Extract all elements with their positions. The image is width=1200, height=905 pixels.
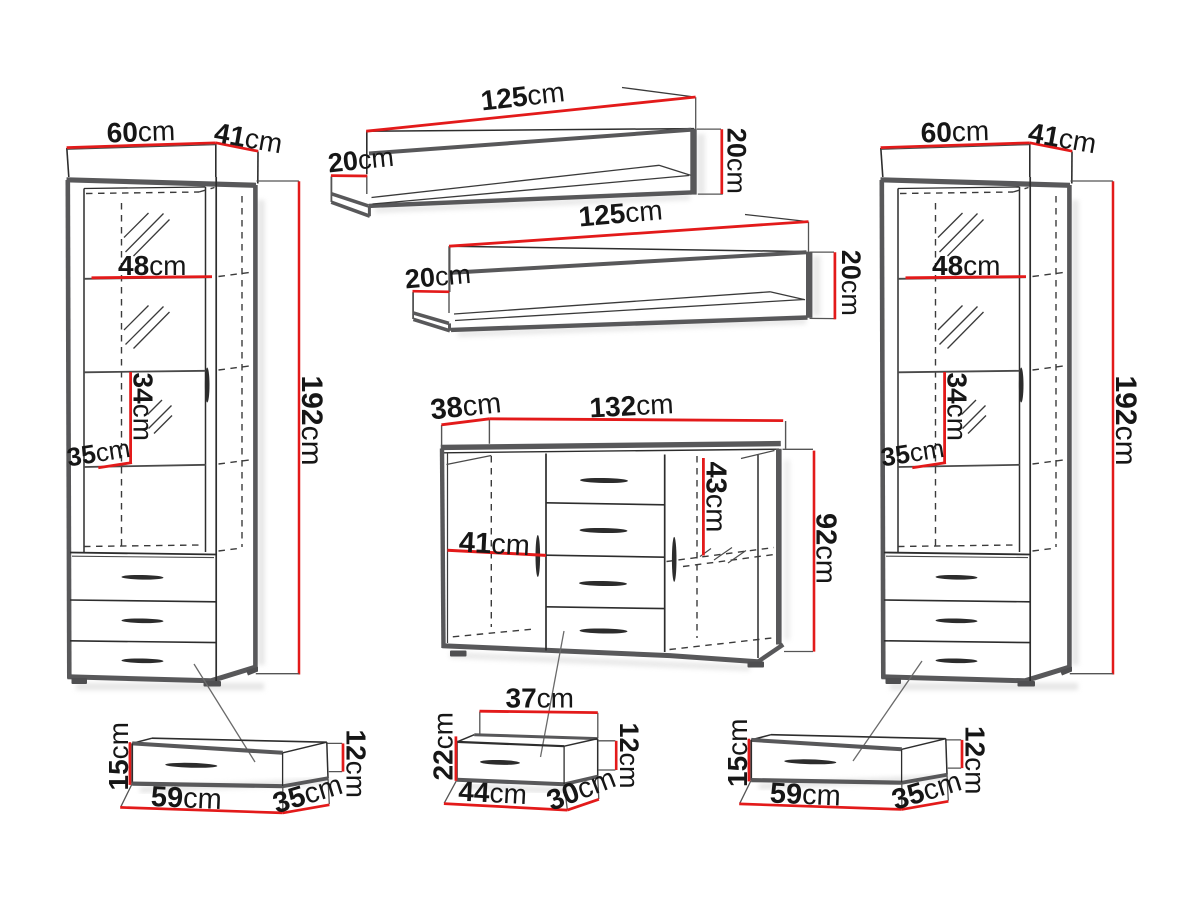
svg-text:41cm: 41cm — [458, 527, 531, 563]
svg-text:20cm: 20cm — [404, 259, 472, 295]
svg-text:132cm: 132cm — [589, 388, 675, 423]
svg-text:92cm: 92cm — [810, 513, 842, 584]
svg-text:22cm: 22cm — [428, 712, 459, 780]
svg-text:44cm: 44cm — [458, 776, 528, 811]
svg-text:37cm: 37cm — [506, 683, 574, 714]
svg-text:20cm: 20cm — [722, 128, 752, 194]
svg-text:12cm: 12cm — [614, 723, 644, 789]
svg-text:20cm: 20cm — [836, 250, 866, 316]
svg-text:43cm: 43cm — [700, 462, 732, 533]
